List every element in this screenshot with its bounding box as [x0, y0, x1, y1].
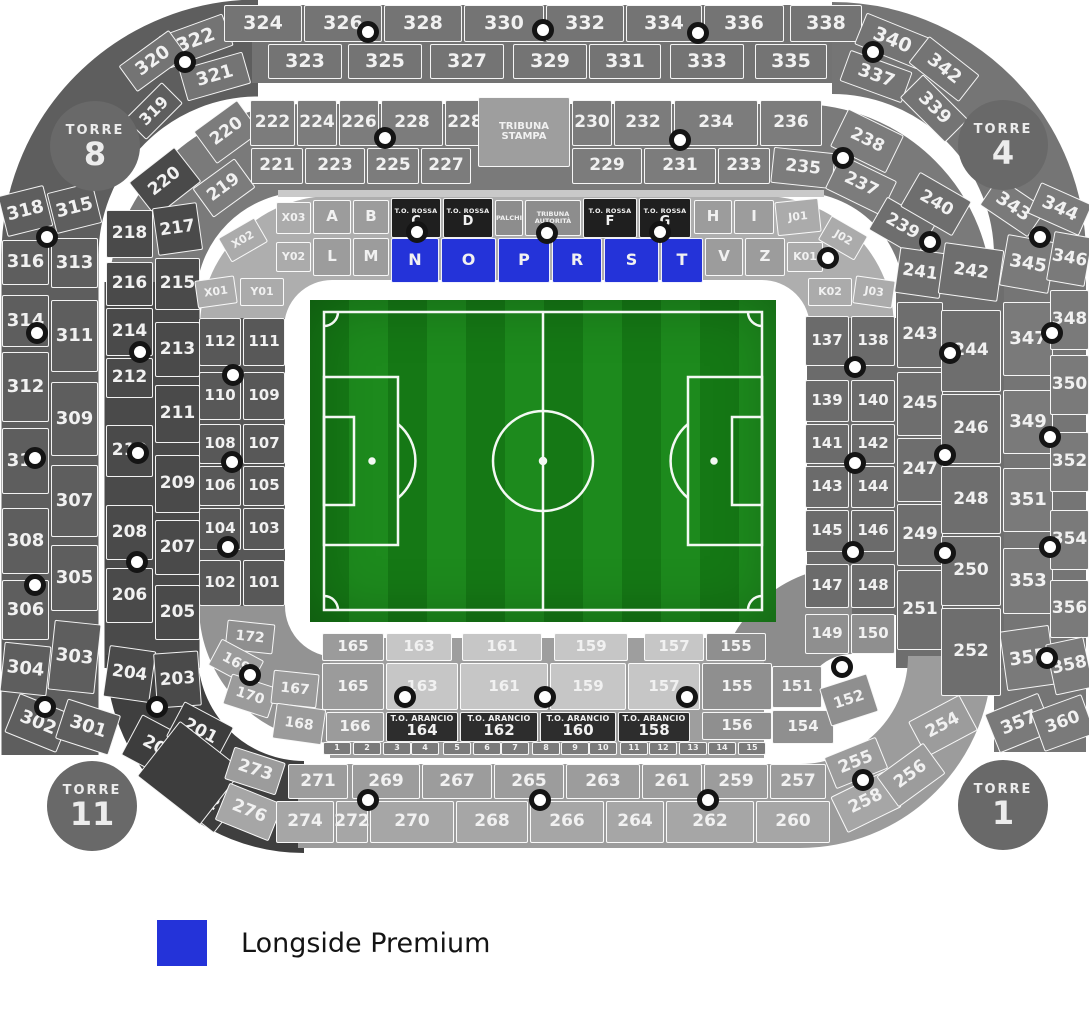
section-15[interactable]: 15: [738, 742, 766, 755]
section-346[interactable]: 346: [1046, 231, 1089, 287]
section-label: 206: [112, 587, 148, 604]
section-j01[interactable]: J01: [774, 198, 821, 236]
section-10[interactable]: 10: [589, 742, 617, 755]
section-label: 336: [724, 14, 764, 33]
section-label: 246: [953, 420, 989, 437]
section-149[interactable]: 149: [805, 614, 849, 654]
section-label: 216: [112, 275, 148, 292]
section-label: 230: [574, 114, 610, 131]
section-label: 318: [5, 198, 46, 225]
section-307[interactable]: 307: [51, 465, 98, 537]
section-336[interactable]: 336: [704, 5, 784, 42]
section-267[interactable]: 267: [422, 764, 492, 799]
section-d[interactable]: T.O. ROSSAD: [443, 198, 493, 238]
section-313[interactable]: 313: [51, 238, 98, 288]
section-12[interactable]: 12: [649, 742, 677, 755]
section-a[interactable]: A: [313, 200, 351, 234]
section-label: 10: [597, 744, 608, 752]
section-327[interactable]: 327: [430, 44, 504, 79]
section-324[interactable]: 324: [224, 5, 302, 42]
section-label: 315: [54, 195, 95, 222]
section-143[interactable]: 143: [805, 466, 849, 508]
section-label: TRIBUNA STAMPA: [499, 122, 549, 142]
section-label: 248: [953, 491, 989, 508]
section-label: 265: [511, 773, 547, 790]
gate-marker-icon: [26, 322, 48, 344]
section-351[interactable]: 351: [1003, 468, 1053, 532]
section-label: 257: [780, 773, 816, 790]
section-label: 266: [549, 813, 585, 830]
section-312[interactable]: 312: [2, 352, 49, 422]
section-label: 102: [204, 575, 235, 590]
section-356[interactable]: 356: [1050, 580, 1089, 638]
section-308[interactable]: 308: [2, 508, 49, 574]
section-label: 350: [1052, 376, 1088, 393]
section-label: 165: [337, 679, 368, 694]
section-label: 268: [474, 813, 510, 830]
section-label: X03: [282, 212, 306, 223]
gate-marker-icon: [127, 442, 149, 464]
section-112[interactable]: 112: [199, 318, 241, 366]
section-label: 211: [160, 405, 196, 422]
section-z[interactable]: Z: [745, 238, 785, 276]
section-328[interactable]: 328: [384, 5, 462, 42]
section-139[interactable]: 139: [805, 380, 849, 422]
gate-marker-icon: [529, 789, 551, 811]
section-155[interactable]: 155: [706, 633, 766, 661]
section-y01[interactable]: Y01: [240, 278, 284, 306]
section-207[interactable]: 207: [155, 520, 200, 575]
section-162[interactable]: T.O. ARANCIO162: [460, 712, 538, 742]
section-label: 163: [403, 639, 434, 654]
section-label: 360: [1043, 709, 1082, 737]
gate-marker-icon: [36, 226, 58, 248]
section-230[interactable]: 230: [572, 100, 612, 146]
section-label: 140: [857, 393, 888, 408]
section-label: 325: [365, 52, 405, 71]
section-label: T: [677, 252, 688, 268]
section-label: 242: [952, 261, 990, 283]
gate-marker-icon: [919, 231, 941, 253]
section-m[interactable]: M: [353, 238, 389, 276]
section-label: 157: [658, 639, 689, 654]
section-label: 152: [832, 688, 867, 712]
section-label: 262: [692, 813, 728, 830]
section-305[interactable]: 305: [51, 545, 98, 611]
section-168[interactable]: 168: [272, 703, 327, 746]
section-270[interactable]: 270: [370, 801, 454, 843]
section-label: R: [571, 252, 583, 268]
section-236[interactable]: 236: [760, 100, 822, 146]
section-label: 308: [7, 532, 45, 550]
section-163[interactable]: 163: [386, 633, 452, 661]
section-label: O: [462, 252, 476, 268]
section-206[interactable]: 206: [106, 568, 153, 623]
section-245[interactable]: 245: [897, 372, 943, 436]
section-215[interactable]: 215: [155, 258, 200, 310]
section-label: 225: [375, 157, 411, 174]
section-212[interactable]: 212: [106, 358, 153, 398]
section-label: 254: [923, 710, 962, 742]
section-350[interactable]: 350: [1050, 355, 1089, 415]
section-227[interactable]: 227: [421, 148, 471, 184]
section-232[interactable]: 232: [614, 100, 672, 146]
section-label: 207: [160, 539, 196, 556]
section-101[interactable]: 101: [243, 560, 285, 606]
section-231[interactable]: 231: [644, 148, 716, 184]
section-label: 327: [447, 52, 487, 71]
section-label: 167: [280, 680, 311, 697]
section-332[interactable]: 332: [546, 5, 624, 42]
section-229[interactable]: 229: [572, 148, 642, 184]
section-label: 256: [892, 758, 931, 793]
gate-marker-icon: [374, 127, 396, 149]
section-label: 245: [902, 395, 938, 412]
section-label: 11: [628, 744, 639, 752]
section-165[interactable]: 165: [322, 663, 384, 710]
section-2[interactable]: 2: [353, 742, 381, 755]
section-309[interactable]: 309: [51, 382, 98, 456]
section-label: J01: [788, 210, 808, 223]
section-160[interactable]: T.O. ARANCIO160: [540, 712, 616, 742]
section-label: 332: [565, 14, 605, 33]
section-label: 159: [572, 679, 603, 694]
section-t[interactable]: T: [661, 238, 703, 283]
section-161[interactable]: 161: [462, 633, 542, 661]
section-325[interactable]: 325: [348, 44, 422, 79]
section-265[interactable]: 265: [494, 764, 564, 799]
torre-4-badge: TORRE4: [958, 100, 1048, 190]
section-303[interactable]: 303: [47, 620, 101, 695]
section-159[interactable]: 159: [554, 633, 628, 661]
section-252[interactable]: 252: [941, 608, 1001, 696]
tower-number: 11: [70, 798, 115, 830]
section-label: 351: [1009, 491, 1047, 509]
section-label: 272: [334, 813, 370, 830]
gate-marker-icon: [532, 19, 554, 41]
section-label: 164: [406, 723, 437, 738]
section-label: 334: [644, 14, 684, 33]
section-label: 154: [787, 719, 818, 734]
section-225[interactable]: 225: [367, 148, 419, 184]
section-label: 333: [687, 52, 727, 71]
section-224[interactable]: 224: [297, 100, 337, 146]
gate-marker-icon: [852, 769, 874, 791]
section-label: 150: [857, 626, 888, 641]
section-242[interactable]: 242: [938, 242, 1005, 302]
section-label: 8: [543, 744, 549, 752]
section-1[interactable]: 1: [323, 742, 351, 755]
section-label: 105: [248, 478, 279, 493]
section-label: 110: [204, 388, 235, 403]
section-label: 249: [902, 526, 938, 543]
section-label: 232: [625, 114, 661, 131]
section-x03[interactable]: X03: [276, 202, 311, 234]
section-233[interactable]: 233: [718, 148, 770, 184]
section-label: 209: [160, 475, 196, 492]
section-v[interactable]: V: [705, 238, 743, 276]
gate-marker-icon: [831, 656, 853, 678]
section-label: V: [718, 249, 730, 264]
section-i[interactable]: I: [734, 200, 774, 234]
section-label: 14: [716, 744, 727, 752]
section-label: 170: [234, 685, 266, 708]
gate-marker-icon: [934, 444, 956, 466]
section-label: 203: [159, 670, 196, 690]
section-14[interactable]: 14: [708, 742, 736, 755]
section-n[interactable]: N: [391, 238, 439, 283]
section-label: 306: [7, 601, 45, 619]
section-323[interactable]: 323: [268, 44, 342, 79]
section-164[interactable]: T.O. ARANCIO164: [386, 712, 458, 742]
section-label: 260: [775, 813, 811, 830]
section-label: 276: [229, 797, 268, 826]
section-label: 109: [248, 388, 279, 403]
section-268[interactable]: 268: [456, 801, 528, 843]
section-f[interactable]: T.O. ROSSAF: [583, 198, 637, 238]
gate-marker-icon: [221, 451, 243, 473]
section-label: N: [408, 252, 421, 268]
section-5[interactable]: 5: [443, 742, 471, 755]
section-label: 303: [55, 646, 94, 668]
section-label: 103: [248, 521, 279, 536]
section-r[interactable]: R: [552, 238, 602, 283]
section-label: 251: [902, 601, 938, 618]
section-label: M: [364, 249, 379, 264]
section-label: 166: [339, 719, 370, 734]
section-label: 240: [916, 188, 955, 221]
section-338[interactable]: 338: [790, 5, 862, 42]
section-label: 241: [901, 262, 939, 284]
section-label: 2: [364, 744, 370, 752]
section-label: TRIBUNA AUTORITÀ: [535, 211, 571, 224]
section-329[interactable]: 329: [513, 44, 587, 79]
section-tribuna-stampa[interactable]: TRIBUNA STAMPA: [478, 97, 570, 167]
section-156[interactable]: 156: [702, 712, 772, 740]
section-label: 149: [811, 626, 842, 641]
section-label: 335: [771, 52, 811, 71]
section-151[interactable]: 151: [772, 666, 822, 708]
section-label: 15: [746, 744, 757, 752]
section-218[interactable]: 218: [106, 210, 153, 258]
section-label: 108: [204, 436, 235, 451]
section-226[interactable]: 226: [339, 100, 379, 146]
section-260[interactable]: 260: [756, 801, 830, 843]
section-label: 226: [341, 114, 377, 131]
section-label: 12: [657, 744, 668, 752]
section-216[interactable]: 216: [106, 262, 153, 306]
section-j03[interactable]: J03: [852, 275, 896, 308]
section-148[interactable]: 148: [851, 564, 895, 608]
section-263[interactable]: 263: [566, 764, 640, 799]
section-x01[interactable]: X01: [194, 275, 238, 308]
section-157[interactable]: 157: [644, 633, 704, 661]
torre-11-badge: TORRE11: [47, 761, 137, 851]
section-label: 106: [204, 478, 235, 493]
section-158[interactable]: T.O. ARANCIO158: [618, 712, 690, 742]
pitch-lines: [310, 300, 776, 622]
gate-marker-icon: [817, 247, 839, 269]
section-label: 271: [300, 773, 336, 790]
section-137[interactable]: 137: [805, 316, 849, 366]
gate-marker-icon: [357, 789, 379, 811]
section-154[interactable]: 154: [772, 710, 834, 744]
section-label: 212: [112, 369, 148, 386]
section-208[interactable]: 208: [106, 505, 153, 560]
gate-marker-icon: [239, 664, 261, 686]
section-251[interactable]: 251: [897, 570, 943, 650]
gate-marker-icon: [174, 51, 196, 73]
section-label: P: [518, 252, 530, 268]
section-331[interactable]: 331: [589, 44, 661, 79]
section-label: D: [463, 215, 474, 228]
section-label: 345: [1008, 252, 1048, 277]
section-4[interactable]: 4: [411, 742, 439, 755]
section-111[interactable]: 111: [243, 318, 285, 366]
section-k02[interactable]: K02: [808, 278, 852, 306]
section-palchi[interactable]: PALCHI: [495, 200, 523, 236]
section-label: 274: [287, 813, 323, 830]
section-9[interactable]: 9: [561, 742, 589, 755]
gate-marker-icon: [146, 696, 168, 718]
section-label: 138: [857, 333, 888, 348]
section-label: 219: [205, 171, 244, 206]
section-165[interactable]: 165: [322, 633, 384, 661]
section-label: 155: [720, 639, 751, 654]
section-label: 231: [662, 157, 698, 174]
torre-8-badge: TORRE8: [50, 101, 140, 191]
football-pitch: [310, 300, 776, 622]
section-label: 101: [248, 575, 279, 590]
section-b[interactable]: B: [353, 200, 389, 234]
section-209[interactable]: 209: [155, 455, 200, 513]
section-label: 223: [317, 157, 353, 174]
section-150[interactable]: 150: [851, 614, 895, 654]
section-102[interactable]: 102: [199, 560, 241, 606]
section-label: 316: [7, 253, 45, 271]
section-y02[interactable]: Y02: [276, 242, 311, 272]
section-label: 227: [428, 157, 464, 174]
section-l[interactable]: L: [313, 238, 351, 276]
section-213[interactable]: 213: [155, 322, 200, 377]
upper-walkway: [278, 190, 824, 197]
section-166[interactable]: 166: [326, 712, 384, 742]
section-103[interactable]: 103: [243, 508, 285, 550]
section-label: B: [365, 209, 376, 224]
section-311[interactable]: 311: [51, 300, 98, 372]
section-140[interactable]: 140: [851, 380, 895, 422]
section-217[interactable]: 217: [152, 202, 203, 256]
section-label: 215: [160, 275, 196, 292]
section-label: 263: [585, 773, 621, 790]
section-8[interactable]: 8: [532, 742, 560, 755]
gate-marker-icon: [534, 686, 556, 708]
section-11[interactable]: 11: [620, 742, 648, 755]
section-159[interactable]: 159: [550, 663, 626, 710]
section-147[interactable]: 147: [805, 564, 849, 608]
section-211[interactable]: 211: [155, 385, 200, 443]
section-label: 7: [512, 744, 518, 752]
section-243[interactable]: 243: [897, 302, 943, 368]
section-330[interactable]: 330: [464, 5, 544, 42]
section-o[interactable]: O: [441, 238, 496, 283]
section-223[interactable]: 223: [305, 148, 365, 184]
gate-marker-icon: [862, 41, 884, 63]
section-105[interactable]: 105: [243, 466, 285, 506]
section-p[interactable]: P: [498, 238, 550, 283]
section-333[interactable]: 333: [670, 44, 744, 79]
section-label: 6: [484, 744, 490, 752]
section-label: 234: [698, 114, 734, 131]
section-221[interactable]: 221: [251, 148, 303, 184]
section-label: 252: [953, 643, 989, 660]
section-235[interactable]: 235: [770, 147, 835, 189]
gate-marker-icon: [24, 447, 46, 469]
section-6[interactable]: 6: [473, 742, 501, 755]
section-257[interactable]: 257: [770, 764, 826, 799]
section-274[interactable]: 274: [276, 801, 334, 843]
section-label: 147: [811, 578, 842, 593]
section-205[interactable]: 205: [155, 585, 200, 640]
section-label: 218: [112, 225, 148, 242]
section-label: 304: [6, 658, 45, 680]
section-label: 259: [718, 773, 754, 790]
section-label: PALCHI: [496, 215, 522, 222]
section-label: 156: [721, 718, 752, 733]
tower-number: 8: [84, 138, 106, 170]
section-335[interactable]: 335: [755, 44, 827, 79]
section-label: 220: [208, 115, 247, 150]
section-s[interactable]: S: [604, 238, 659, 283]
gate-marker-icon: [832, 147, 854, 169]
section-107[interactable]: 107: [243, 424, 285, 464]
gate-marker-icon: [842, 541, 864, 563]
section-109[interactable]: 109: [243, 372, 285, 420]
section-label: A: [326, 209, 338, 224]
section-label: 344: [1039, 193, 1081, 225]
section-label: J02: [832, 228, 854, 247]
section-248[interactable]: 248: [941, 466, 1001, 534]
section-label: X02: [230, 229, 256, 251]
section-264[interactable]: 264: [606, 801, 664, 843]
gate-marker-icon: [34, 696, 56, 718]
section-222[interactable]: 222: [250, 100, 295, 146]
section-label: 353: [1009, 572, 1047, 590]
section-label: 1: [334, 744, 340, 752]
section-353[interactable]: 353: [1003, 548, 1053, 614]
section-h[interactable]: H: [694, 200, 732, 234]
section-label: 235: [784, 158, 821, 179]
section-3[interactable]: 3: [383, 742, 411, 755]
section-13[interactable]: 13: [679, 742, 707, 755]
section-label: 160: [562, 723, 593, 738]
section-271[interactable]: 271: [288, 764, 348, 799]
gate-marker-icon: [1039, 426, 1061, 448]
section-204[interactable]: 204: [103, 645, 157, 703]
tower-number: 4: [992, 137, 1014, 169]
section-261[interactable]: 261: [642, 764, 702, 799]
section-label: I: [751, 209, 757, 224]
section-304[interactable]: 304: [0, 642, 51, 697]
section-155[interactable]: 155: [702, 663, 772, 710]
gate-marker-icon: [687, 22, 709, 44]
gate-marker-icon: [536, 222, 558, 244]
section-label: 214: [112, 323, 148, 340]
section-label: 307: [56, 492, 94, 510]
section-label: 161: [486, 639, 517, 654]
section-141[interactable]: 141: [805, 424, 849, 464]
section-7[interactable]: 7: [501, 742, 529, 755]
